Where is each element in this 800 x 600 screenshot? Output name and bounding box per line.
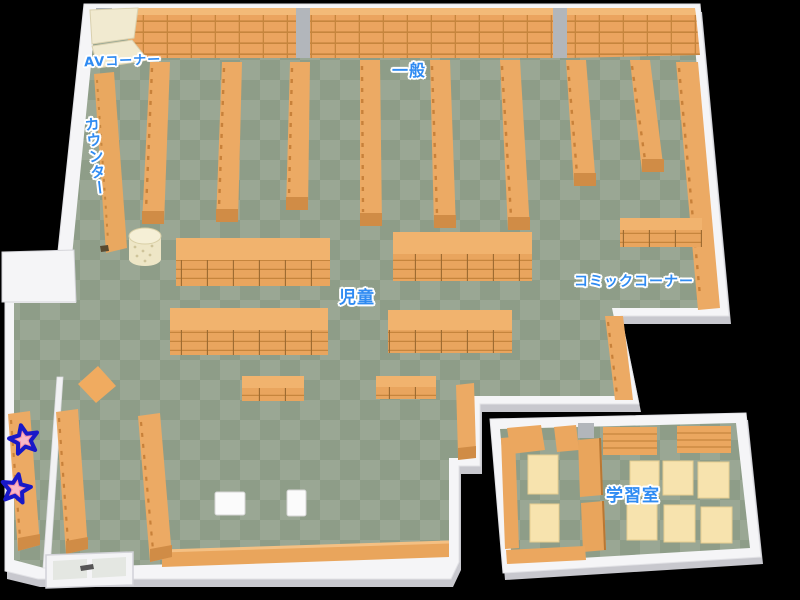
study-table <box>663 461 693 495</box>
low-shelf-top <box>388 310 512 332</box>
wall-shelf-top-face <box>310 8 553 15</box>
study-table <box>530 504 559 542</box>
cylinder-display <box>129 228 161 266</box>
library-floor-map: AVコーナー 一般 カウンター 児童 コミックコーナー 学習室 <box>0 0 800 600</box>
wall-shelf-c <box>567 15 700 58</box>
shelf-end-cap <box>458 446 476 460</box>
low-shelf-front <box>176 260 330 286</box>
label-general: 一般 <box>392 57 426 81</box>
low-shelf-front <box>242 388 304 401</box>
floor-map-canvas <box>0 0 800 600</box>
low-shelf-front <box>170 330 328 355</box>
study-pillar <box>578 423 594 438</box>
wall-shelves-top <box>96 8 700 58</box>
av-shelf <box>90 8 138 44</box>
low-shelf-top <box>170 308 328 332</box>
label-study-room: 学習室 <box>606 481 660 506</box>
wall-side-shelf <box>456 383 476 454</box>
wall-shelf-b <box>310 15 553 58</box>
study-shelf <box>507 425 545 454</box>
low-shelf-top <box>376 376 436 388</box>
study-table <box>528 455 558 494</box>
study-table <box>664 505 695 542</box>
cylinder-bottom <box>129 252 161 266</box>
low-shelf-top <box>620 218 702 232</box>
label-comic-corner: コミックコーナー <box>574 271 694 291</box>
entrance <box>46 552 133 588</box>
low-shelf-front <box>393 254 532 281</box>
wall-pillar-b <box>553 8 567 58</box>
study-table <box>701 507 732 543</box>
study-table <box>627 503 657 540</box>
low-shelf-front <box>620 230 702 247</box>
wall-pillar-a <box>296 8 310 58</box>
white-table <box>215 492 245 515</box>
label-children: 児童 <box>339 283 375 308</box>
left-wall-notch <box>2 250 76 302</box>
study-shelf <box>554 425 579 452</box>
low-shelf-top <box>242 376 304 389</box>
low-shelf-front <box>388 330 512 353</box>
divider-shelf <box>581 501 606 552</box>
divider-shelf <box>578 438 603 497</box>
white-table <box>287 490 306 516</box>
low-shelf-front <box>376 387 436 399</box>
wall-shelf-top-face <box>567 8 696 15</box>
cylinder-top <box>129 228 161 244</box>
counter-end <box>100 245 109 252</box>
label-av-corner: AVコーナー <box>84 49 162 71</box>
study-table <box>698 462 729 498</box>
wall-shelf-top-face <box>128 8 296 15</box>
entrance-door <box>92 557 126 578</box>
